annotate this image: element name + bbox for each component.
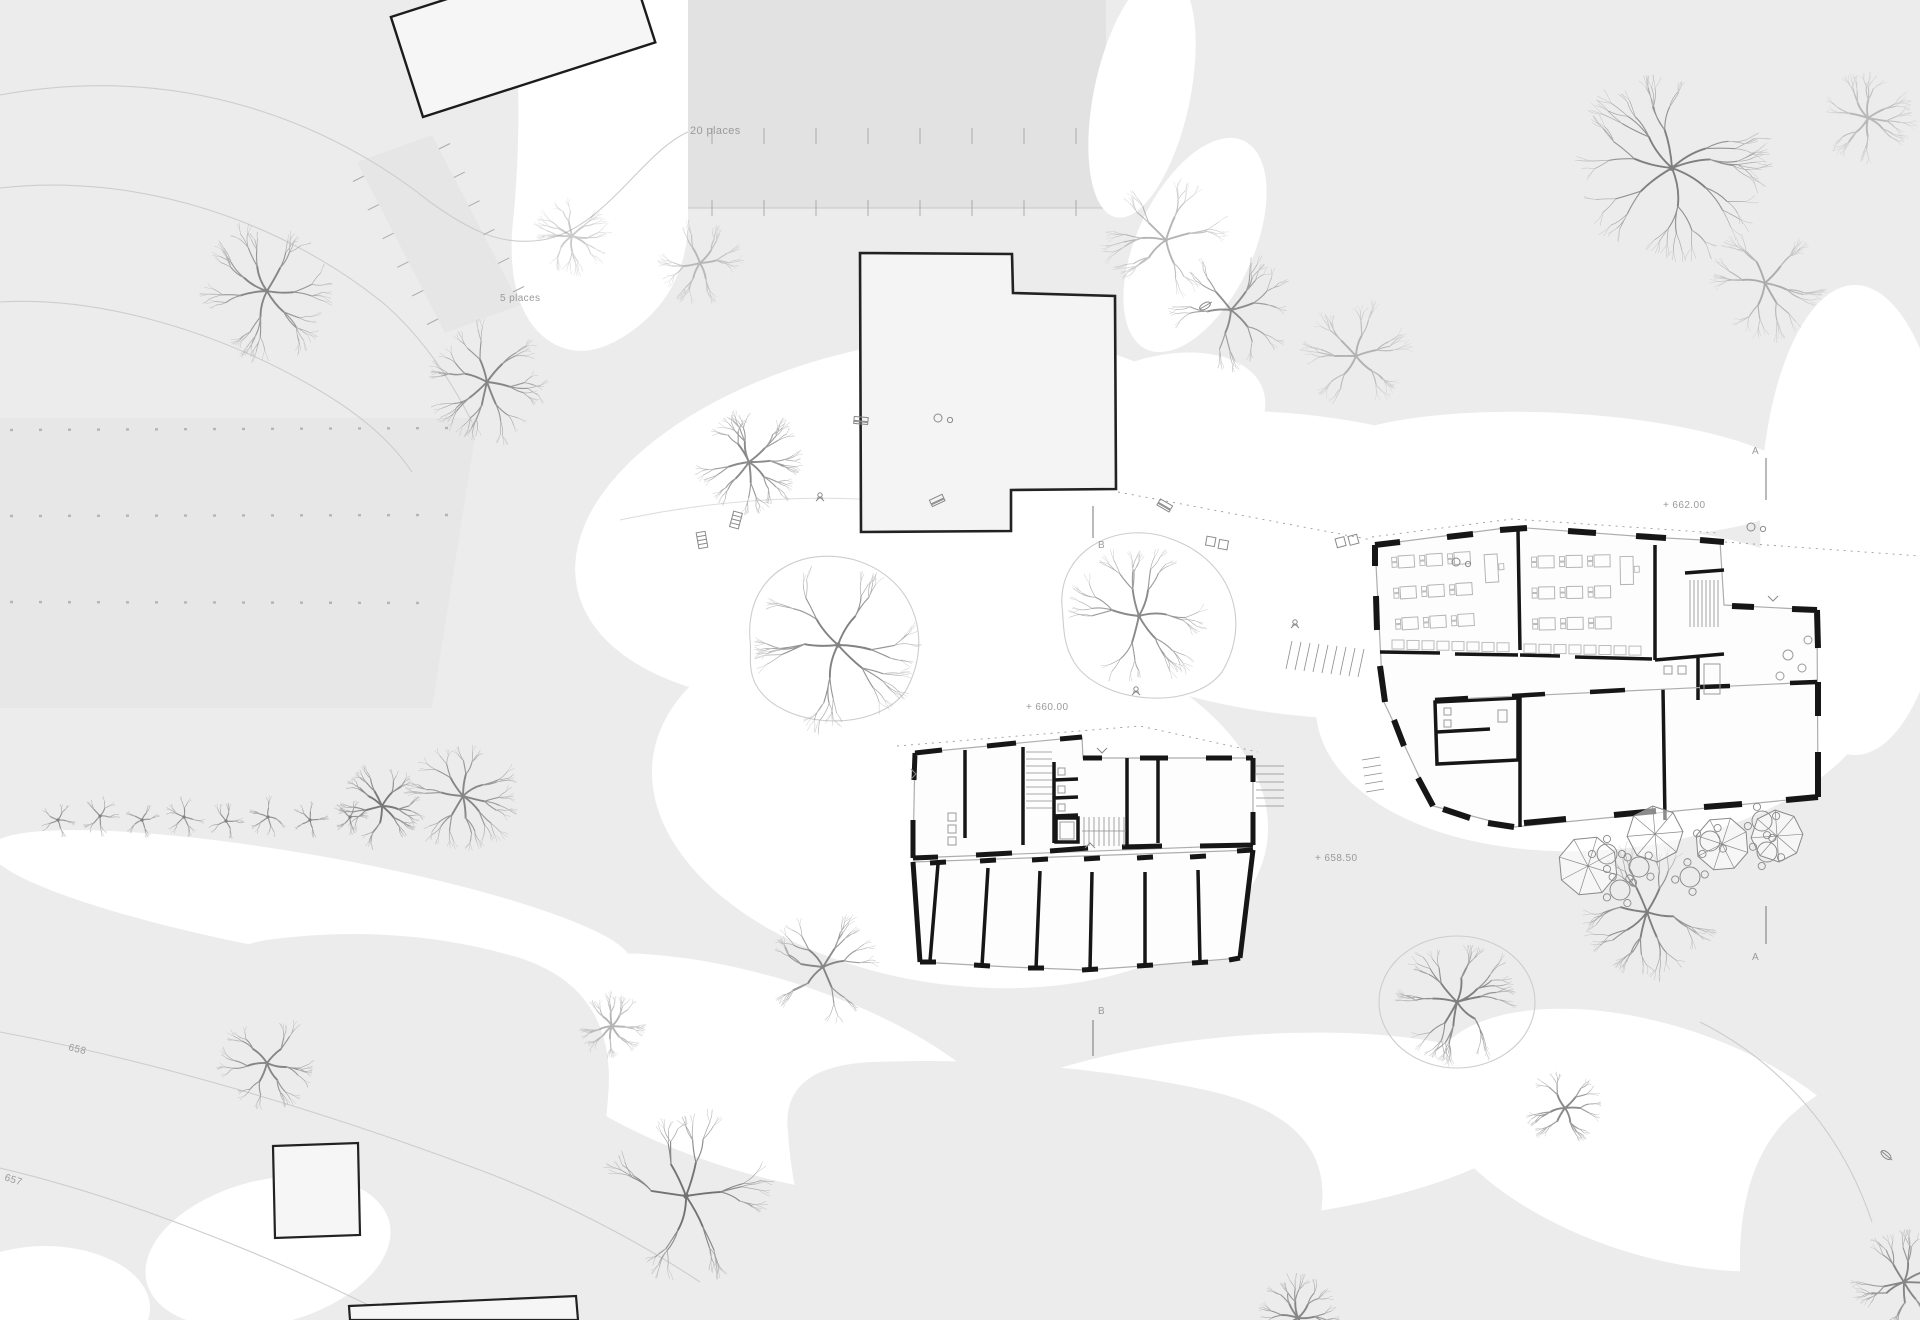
parking-small-label: 5 places [500, 293, 540, 304]
section-a-top-label: A [1752, 446, 1759, 457]
parasol-table-icon [1696, 818, 1747, 869]
section-a-bottom-label: A [1752, 952, 1759, 963]
level-660-label: + 660.00 [1026, 702, 1068, 713]
site-plan-page: 20 places5 places+ 662.00+ 660.00+ 658.5… [0, 0, 1920, 1320]
parasol-table-icon [1627, 806, 1683, 862]
section-b-top-label: B [1098, 540, 1105, 551]
field-area [0, 418, 478, 708]
building-footprint-center [860, 253, 1116, 532]
level-662-label: + 662.00 [1663, 500, 1705, 511]
building-footprint-southwest [273, 1143, 360, 1238]
site-plan-canvas: 20 places5 places+ 662.00+ 660.00+ 658.5… [0, 0, 1920, 1320]
parking-lot-large [686, 0, 1106, 208]
level-658-label: + 658.50 [1315, 853, 1357, 864]
section-b-bottom-label: B [1098, 1006, 1105, 1017]
parking-large-label: 20 places [690, 125, 741, 137]
